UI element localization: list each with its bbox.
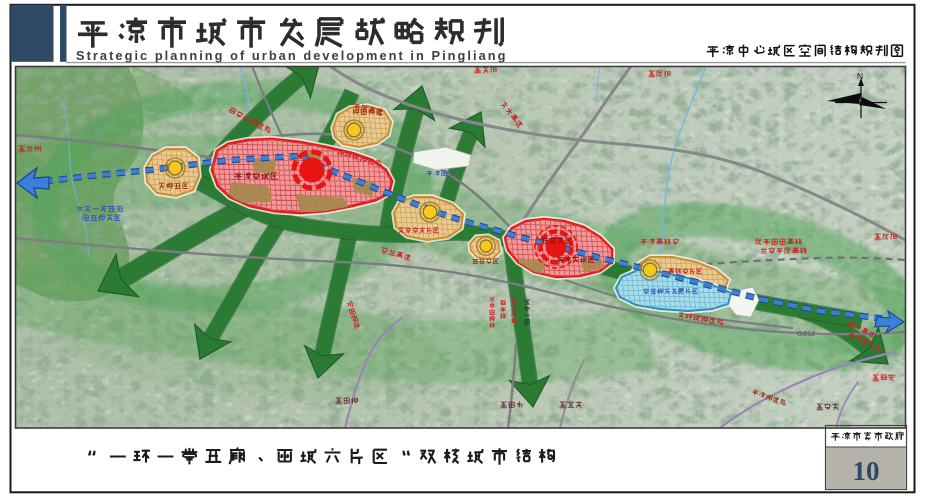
svg-text:10: 10 bbox=[853, 456, 880, 486]
svg-text:G312: G312 bbox=[797, 329, 815, 338]
svg-text:N: N bbox=[857, 71, 863, 81]
